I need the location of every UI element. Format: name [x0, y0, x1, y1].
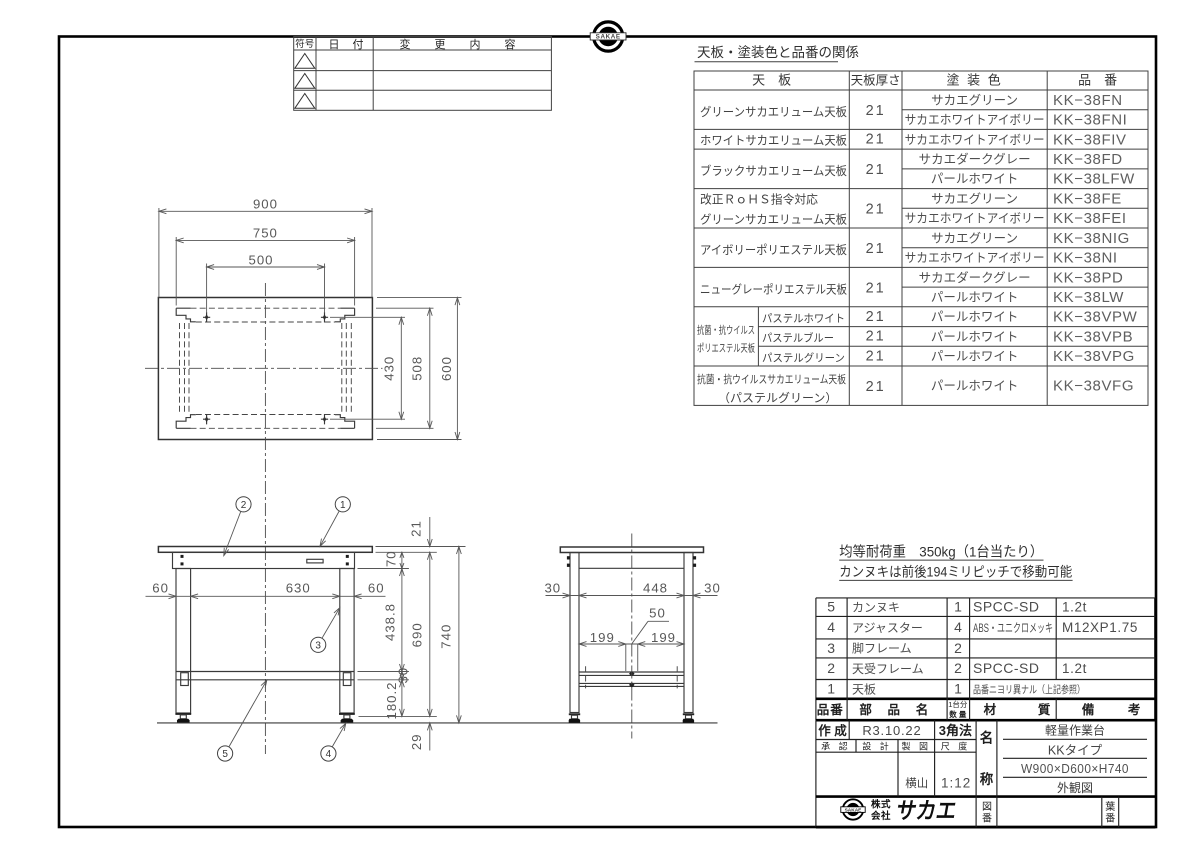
svg-text:承 認: 承 認	[821, 741, 851, 752]
svg-text:21: 21	[866, 309, 886, 325]
svg-text:21: 21	[866, 241, 886, 257]
svg-text:サカエダークグレー: サカエダークグレー	[919, 270, 1031, 285]
svg-text:ポリエステル天板: ポリエステル天板	[697, 342, 755, 355]
svg-text:サカエホワイトアイボリー: サカエホワイトアイボリー	[905, 113, 1045, 127]
svg-text:アイボリーポリエステル天板: アイボリーポリエステル天板	[700, 243, 847, 257]
svg-text:脚フレーム: 脚フレーム	[852, 641, 912, 656]
svg-text:天 板: 天 板	[752, 73, 791, 88]
svg-text:製 図: 製 図	[902, 741, 932, 752]
svg-text:KK−38NIG: KK−38NIG	[1053, 230, 1130, 247]
svg-text:考: 考	[1128, 702, 1141, 717]
svg-text:株式: 株式	[871, 799, 891, 811]
svg-text:天板厚さ: 天板厚さ	[851, 74, 901, 88]
svg-text:変: 変	[400, 37, 411, 51]
svg-text:600: 600	[439, 356, 454, 381]
svg-text:パールホワイト: パールホワイト	[931, 330, 1019, 344]
svg-text:会社: 会社	[871, 810, 891, 822]
svg-text:5: 5	[222, 749, 228, 760]
svg-text:199: 199	[651, 630, 676, 645]
svg-text:容: 容	[505, 37, 516, 51]
svg-text:ABS・ユニクロメッキ: ABS・ユニクロメッキ	[973, 621, 1053, 635]
svg-text:21: 21	[866, 132, 886, 148]
svg-text:750: 750	[253, 226, 278, 241]
svg-text:内: 内	[470, 37, 481, 51]
svg-text:アジャスター: アジャスター	[852, 621, 923, 635]
svg-text:天受フレーム: 天受フレーム	[852, 662, 924, 676]
svg-text:部: 部	[859, 702, 872, 717]
svg-text:30: 30	[704, 581, 721, 596]
svg-text:50: 50	[649, 606, 666, 621]
svg-text:パステルブルー: パステルブルー	[762, 331, 834, 345]
svg-text:21: 21	[866, 162, 886, 178]
svg-text:SAKAE: SAKAE	[845, 808, 863, 814]
svg-text:数 量: 数 量	[949, 709, 967, 719]
svg-text:21: 21	[866, 201, 886, 217]
svg-text:KK−38NI: KK−38NI	[1053, 250, 1118, 267]
svg-text:称: 称	[980, 771, 994, 787]
svg-text:サカエホワイトアイボリー: サカエホワイトアイボリー	[905, 133, 1045, 147]
svg-text:500: 500	[248, 252, 273, 267]
svg-text:448: 448	[643, 581, 668, 596]
svg-text:1:12: 1:12	[941, 775, 971, 790]
svg-text:KK−38LFW: KK−38LFW	[1053, 171, 1135, 188]
svg-text:60: 60	[368, 581, 385, 596]
svg-text:430: 430	[381, 356, 396, 381]
svg-text:KK−38VPW: KK−38VPW	[1053, 309, 1138, 326]
svg-text:180.2: 180.2	[384, 681, 399, 719]
svg-text:21: 21	[866, 103, 886, 119]
svg-text:1: 1	[827, 681, 835, 697]
svg-text:天板・塗装色と品番の関係: 天板・塗装色と品番の関係	[697, 44, 859, 60]
svg-text:KK−38FD: KK−38FD	[1053, 151, 1123, 168]
svg-text:ニューグレーポリエステル天板: ニューグレーポリエステル天板	[700, 282, 847, 296]
svg-text:30: 30	[396, 667, 411, 684]
svg-text:1: 1	[340, 500, 346, 511]
svg-text:5: 5	[827, 599, 835, 615]
svg-text:KK−38VPG: KK−38VPG	[1053, 348, 1135, 365]
svg-text:サカエグリーン: サカエグリーン	[931, 192, 1018, 206]
svg-text:3角法: 3角法	[939, 723, 972, 738]
svg-text:質: 質	[1038, 702, 1051, 717]
svg-text:品: 品	[817, 703, 830, 717]
svg-text:70: 70	[384, 550, 399, 567]
svg-text:抗菌・抗ウイルスサカエリューム天板: 抗菌・抗ウイルスサカエリューム天板	[697, 372, 846, 386]
svg-text:1: 1	[954, 681, 962, 697]
svg-text:SPCC-SD: SPCC-SD	[973, 660, 1040, 676]
svg-text:SPCC-SD: SPCC-SD	[973, 599, 1040, 615]
svg-text:1.2t: 1.2t	[1062, 600, 1087, 615]
svg-text:900: 900	[253, 197, 278, 212]
svg-text:パールホワイト: パールホワイト	[931, 291, 1019, 305]
svg-text:符号: 符号	[295, 38, 314, 50]
svg-text:1: 1	[954, 599, 962, 615]
svg-text:改正ＲｏＨＳ指令対応: 改正ＲｏＨＳ指令対応	[700, 192, 818, 207]
svg-text:KK−38PD: KK−38PD	[1053, 269, 1124, 286]
svg-text:軽量作業台: 軽量作業台	[1045, 723, 1105, 738]
svg-text:カンヌキは前後194ミリピッチで移動可能: カンヌキは前後194ミリピッチで移動可能	[839, 564, 1072, 580]
svg-text:KK−38FEI: KK−38FEI	[1053, 210, 1127, 227]
svg-text:天板: 天板	[852, 682, 876, 696]
svg-text:KK−38VFG: KK−38VFG	[1053, 378, 1134, 395]
svg-text:W900×D600×H740: W900×D600×H740	[1021, 761, 1129, 776]
svg-text:抗菌・抗ウイルス: 抗菌・抗ウイルス	[697, 324, 755, 337]
svg-text:パールホワイト: パールホワイト	[931, 172, 1019, 186]
svg-text:KK−38FIV: KK−38FIV	[1053, 131, 1127, 148]
svg-text:ホワイトサカエリューム天板: ホワイトサカエリューム天板	[700, 134, 847, 148]
svg-text:3: 3	[315, 641, 321, 652]
svg-text:KKタイプ: KKタイプ	[1048, 743, 1103, 757]
svg-text:3: 3	[827, 640, 835, 656]
svg-text:図: 図	[982, 801, 992, 813]
svg-text:1.2t: 1.2t	[1062, 661, 1087, 676]
svg-text:パステルホワイト: パステルホワイト	[762, 312, 845, 325]
svg-text:SAKAE: SAKAE	[596, 34, 621, 41]
svg-text:2: 2	[954, 640, 962, 656]
svg-text:2: 2	[827, 660, 835, 676]
svg-text:名: 名	[980, 729, 994, 745]
svg-text:サカエダークグレー: サカエダークグレー	[919, 152, 1031, 167]
svg-text:均等耐荷重 350kg（1台当たり）: 均等耐荷重 350kg（1台当たり）	[839, 544, 1043, 560]
svg-text:ブラックサカエリューム天板: ブラックサカエリューム天板	[700, 163, 847, 178]
svg-text:2: 2	[241, 500, 247, 511]
svg-text:199: 199	[590, 630, 615, 645]
svg-text:M12XP1.75: M12XP1.75	[1062, 620, 1138, 635]
svg-text:KK−38FE: KK−38FE	[1053, 190, 1122, 207]
svg-text:パールホワイト: パールホワイト	[931, 310, 1019, 324]
svg-text:21: 21	[866, 379, 886, 395]
svg-text:KK−38FNI: KK−38FNI	[1053, 112, 1127, 129]
svg-text:日: 日	[329, 39, 340, 51]
svg-text:4: 4	[827, 619, 835, 635]
svg-text:4: 4	[326, 749, 332, 760]
svg-text:KK−38VPB: KK−38VPB	[1053, 328, 1133, 345]
svg-text:サカエグリーン: サカエグリーン	[931, 93, 1018, 107]
svg-text:パールホワイト: パールホワイト	[931, 379, 1019, 393]
svg-text:508: 508	[410, 356, 425, 381]
svg-text:R3.10.22: R3.10.22	[862, 723, 921, 738]
svg-text:グリーンサカエリューム天板: グリーンサカエリューム天板	[700, 105, 847, 119]
svg-text:サカエ: サカエ	[894, 798, 959, 824]
svg-text:1台分: 1台分	[948, 699, 968, 709]
svg-text:作 成: 作 成	[818, 723, 847, 738]
svg-text:（パステルグリーン）: （パステルグリーン）	[718, 391, 837, 405]
svg-text:備: 備	[1082, 702, 1095, 717]
svg-text:KK−38FN: KK−38FN	[1053, 92, 1123, 109]
svg-text:番: 番	[1105, 813, 1115, 825]
svg-text:2: 2	[954, 660, 962, 676]
svg-text:21: 21	[866, 348, 886, 364]
svg-text:横山: 横山	[905, 776, 928, 790]
svg-text:パステルグリーン: パステルグリーン	[762, 350, 845, 364]
svg-text:パールホワイト: パールホワイト	[931, 350, 1019, 364]
svg-text:外観図: 外観図	[1057, 781, 1093, 795]
svg-text:690: 690	[410, 622, 425, 647]
svg-text:番: 番	[982, 813, 992, 825]
svg-text:品番ニヨリ異ナル（上記参照）: 品番ニヨリ異ナル（上記参照）	[973, 683, 1085, 696]
svg-text:品 番: 品 番	[1078, 73, 1117, 88]
svg-text:21: 21	[408, 520, 423, 537]
svg-text:30: 30	[544, 581, 561, 596]
svg-text:21: 21	[866, 280, 886, 296]
svg-text:尺 度: 尺 度	[941, 741, 971, 752]
svg-text:740: 740	[439, 624, 454, 649]
svg-text:KK−38LW: KK−38LW	[1053, 289, 1124, 306]
svg-text:サカエホワイトアイボリー: サカエホワイトアイボリー	[905, 251, 1045, 265]
svg-text:葉: 葉	[1105, 800, 1115, 813]
svg-text:29: 29	[409, 733, 424, 750]
svg-text:630: 630	[286, 581, 311, 596]
svg-text:21: 21	[866, 329, 886, 345]
svg-text:品: 品	[888, 703, 901, 717]
svg-text:名: 名	[916, 702, 929, 717]
svg-text:438.8: 438.8	[383, 603, 398, 641]
svg-text:グリーンサカエリューム天板: グリーンサカエリューム天板	[700, 212, 847, 226]
svg-text:サカエグリーン: サカエグリーン	[931, 231, 1018, 245]
svg-text:60: 60	[152, 581, 169, 596]
svg-text:4: 4	[954, 619, 962, 635]
svg-text:設 計: 設 計	[862, 741, 892, 752]
svg-text:番: 番	[829, 702, 843, 717]
svg-text:更: 更	[435, 39, 446, 51]
svg-text:塗 装 色: 塗 装 色	[946, 73, 1002, 88]
svg-text:材: 材	[983, 702, 997, 717]
svg-text:付: 付	[353, 38, 364, 51]
svg-text:サカエホワイトアイボリー: サカエホワイトアイボリー	[905, 212, 1045, 226]
svg-text:カンヌキ: カンヌキ	[852, 600, 900, 614]
